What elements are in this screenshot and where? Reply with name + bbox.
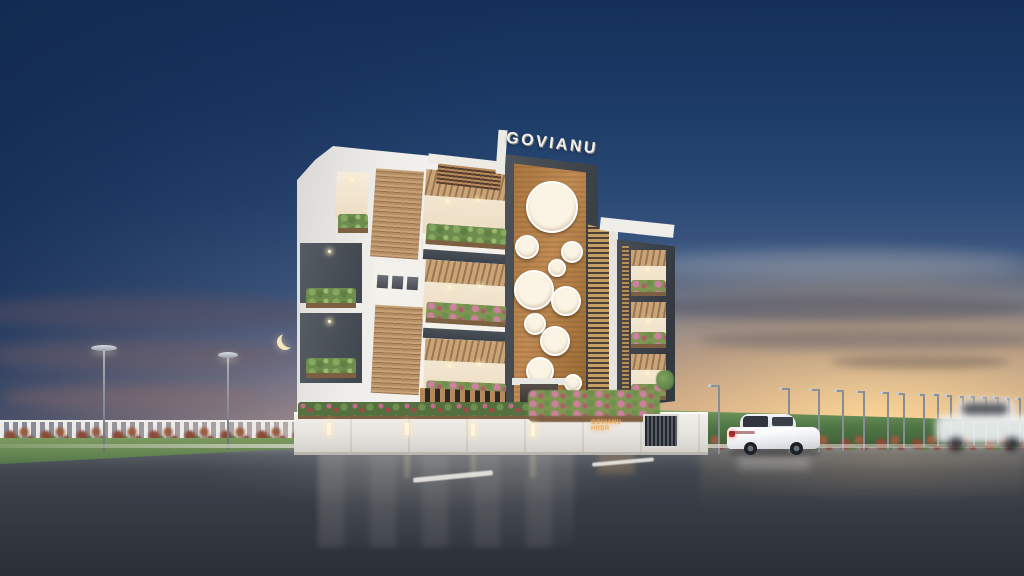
car-windshield xyxy=(962,403,1008,415)
wall-light xyxy=(531,424,535,436)
motion-blurred-car xyxy=(930,393,1024,459)
circular-window xyxy=(561,241,583,263)
circular-window xyxy=(551,286,581,316)
downlight-icon xyxy=(646,320,649,323)
right-balcony xyxy=(631,302,666,348)
wall-light xyxy=(405,423,409,435)
circular-window xyxy=(548,259,566,277)
car-shadow xyxy=(728,448,820,456)
right-balcony xyxy=(631,250,666,296)
wood-ceiling xyxy=(631,250,666,266)
car-wheel xyxy=(744,442,757,455)
car-wheel xyxy=(1004,437,1020,451)
scene-render: GOVIANU GOVIANU HRBR xyxy=(0,0,1024,576)
car-wheel xyxy=(790,442,803,455)
wood-ceiling xyxy=(631,354,666,370)
car-side-window xyxy=(772,417,793,426)
circular-window xyxy=(515,235,539,259)
downlight-icon xyxy=(646,268,649,271)
entrance-gate xyxy=(643,414,679,448)
corner-bush xyxy=(656,370,674,390)
wall-light xyxy=(327,423,331,435)
circular-window xyxy=(540,326,570,356)
balcony-planter xyxy=(631,332,666,348)
circular-window xyxy=(526,181,578,233)
white-sedan xyxy=(726,412,822,458)
wood-pier xyxy=(622,246,629,402)
circular-window xyxy=(514,270,554,310)
balcony-planter xyxy=(631,280,666,296)
compound-wall-sign: GOVIANU HRBR xyxy=(591,420,641,431)
car-rear-window xyxy=(743,416,768,427)
downlight-icon xyxy=(646,372,649,375)
car-taillight xyxy=(729,431,755,434)
bougainvillea-hedge xyxy=(528,390,660,422)
wall-light xyxy=(471,424,475,436)
car-wheel xyxy=(948,437,964,451)
wood-ceiling xyxy=(631,302,666,318)
circular-windows xyxy=(0,0,1024,576)
